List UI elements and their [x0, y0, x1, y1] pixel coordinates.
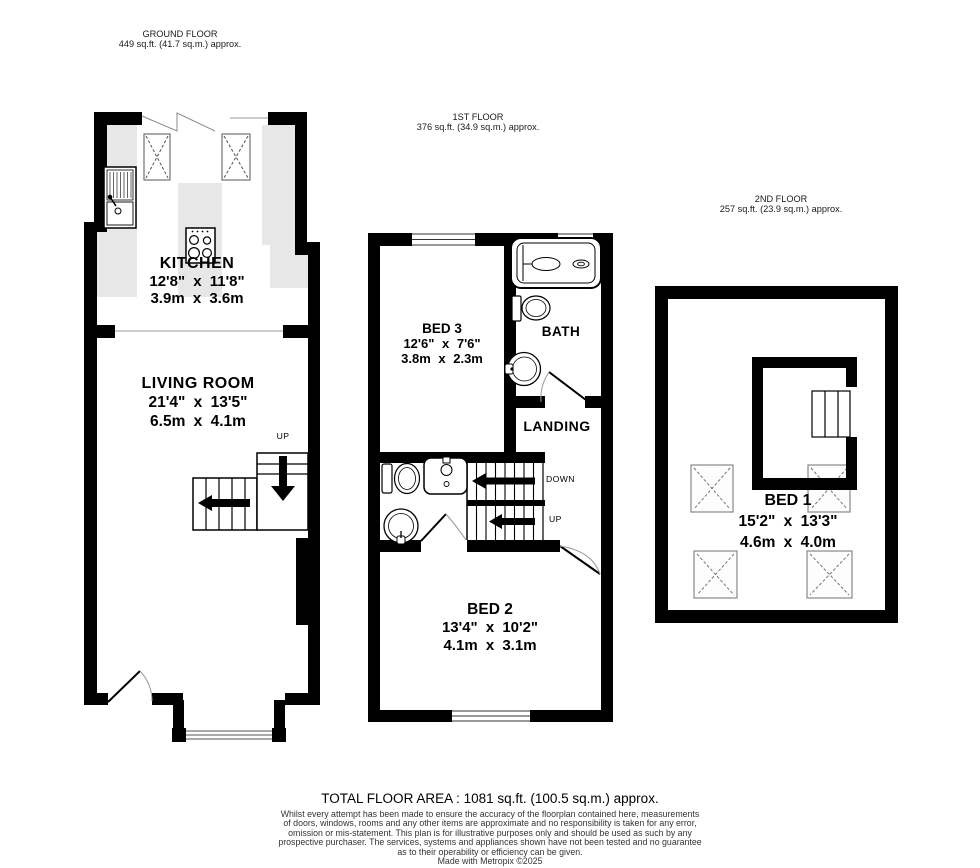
first-floor-area-text: 376 sq.ft. (34.9 sq.m.) approx.	[378, 122, 578, 132]
bed3-metric: 3.8m x 2.3m	[374, 351, 510, 366]
bed2-name: BED 2	[398, 601, 582, 619]
second-stairs	[812, 391, 850, 437]
bed2-metric: 4.1m x 3.1m	[398, 637, 582, 655]
living-room-imperial: 21'4" x 13'5"	[108, 393, 288, 412]
ground-up-label: UP	[267, 431, 299, 441]
bed1-metric: 4.6m x 4.0m	[694, 532, 882, 553]
kitchen-imperial: 12'8" x 11'8"	[117, 273, 277, 290]
second-walls	[655, 286, 898, 623]
bath-toilet-icon	[512, 296, 550, 321]
kitchen-label: KITCHEN 12'8" x 11'8" 3.9m x 3.6m	[117, 255, 277, 307]
second-floor-title-text: 2ND FLOOR	[681, 194, 881, 204]
living-room-metric: 6.5m x 4.1m	[108, 412, 288, 431]
metropix-credit: Made with Metropix ©2025	[0, 857, 980, 866]
bed3-imperial: 12'6" x 7'6"	[374, 336, 510, 351]
bath-label: BATH	[518, 324, 604, 339]
bed2-imperial: 13'4" x 10'2"	[398, 619, 582, 637]
wc-basin-unit-icon	[424, 457, 467, 494]
second-floor-title: 2ND FLOOR 257 sq.ft. (23.9 sq.m.) approx…	[681, 194, 881, 214]
wc-toilet-icon	[382, 464, 420, 494]
bathtub-icon	[511, 238, 601, 288]
first-up-label: UP	[549, 514, 562, 524]
bed2-label: BED 2 13'4" x 10'2" 4.1m x 3.1m	[398, 601, 582, 654]
bath-door-swing-icon	[541, 372, 586, 402]
bed1-label: BED 1 15'2" x 13'3" 4.6m x 4.0m	[694, 490, 882, 553]
ground-floor-area-text: 449 sq.ft. (41.7 sq.m.) approx.	[80, 39, 280, 49]
wc-pedestal-sink-icon	[384, 509, 418, 544]
kitchen-sink-icon	[104, 167, 136, 228]
second-floor-plan	[648, 280, 906, 630]
bed2-door-swing-icon	[560, 546, 600, 574]
total-floor-area: TOTAL FLOOR AREA : 1081 sq.ft. (100.5 sq…	[0, 791, 980, 806]
bay-window-icon	[186, 731, 272, 739]
living-room-label: LIVING ROOM 21'4" x 13'5" 6.5m x 4.1m	[108, 374, 288, 431]
kitchen-metric: 3.9m x 3.6m	[117, 290, 277, 307]
second-floor-area-text: 257 sq.ft. (23.9 sq.m.) approx.	[681, 204, 881, 214]
bed3-label: BED 3 12'6" x 7'6" 3.8m x 2.3m	[374, 321, 510, 366]
first-down-label: DOWN	[546, 474, 575, 484]
door-swing-icon	[108, 671, 152, 702]
floorplan-page: GROUND FLOOR 449 sq.ft. (41.7 sq.m.) app…	[0, 0, 980, 868]
first-floor-title: 1ST FLOOR 376 sq.ft. (34.9 sq.m.) approx…	[378, 112, 578, 132]
ground-stairs	[193, 453, 308, 530]
ground-floor-title: GROUND FLOOR 449 sq.ft. (41.7 sq.m.) app…	[80, 29, 280, 49]
ground-floor-title-text: GROUND FLOOR	[80, 29, 280, 39]
stairs-down-arrow-icon	[472, 473, 535, 489]
bifold-door-icon	[142, 113, 268, 131]
rooflight-window-icons	[144, 134, 250, 180]
bed1-name: BED 1	[694, 490, 882, 511]
first-floor-plan	[358, 225, 620, 730]
living-room-name: LIVING ROOM	[108, 374, 288, 393]
bed1-imperial: 15'2" x 13'3"	[694, 511, 882, 532]
disclaimer: Whilst every attempt has been made to en…	[0, 810, 980, 866]
first-floor-title-text: 1ST FLOOR	[378, 112, 578, 122]
landing-label: LANDING	[502, 418, 612, 434]
bed3-name: BED 3	[374, 321, 510, 336]
wc-door-swing-icon	[421, 514, 466, 541]
kitchen-name: KITCHEN	[117, 255, 277, 273]
